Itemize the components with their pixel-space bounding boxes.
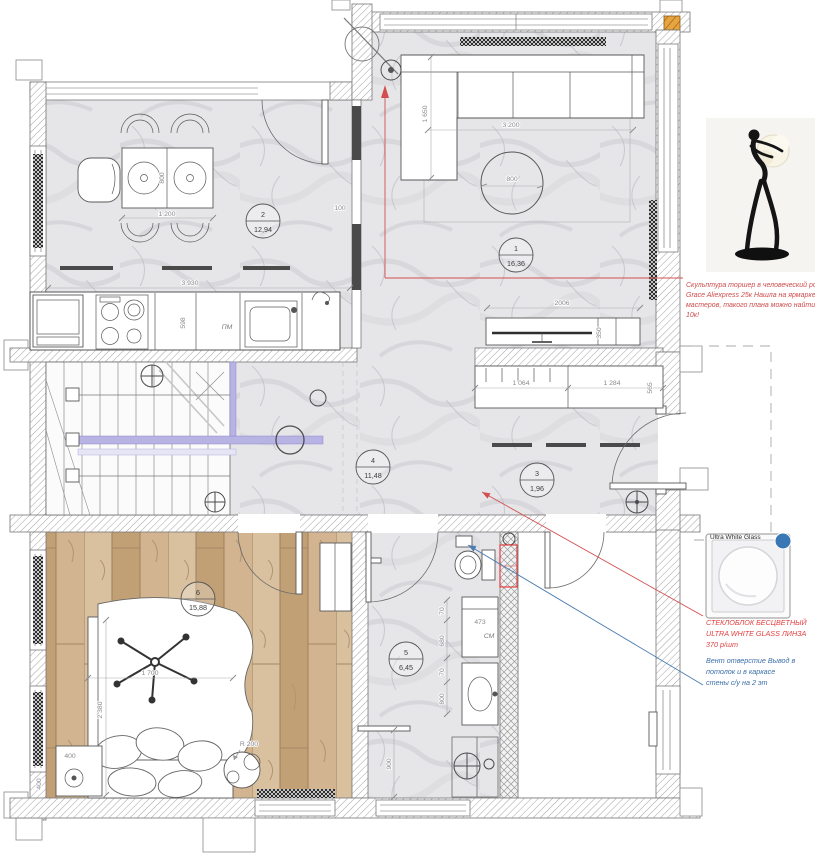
floor-storage [518,532,658,798]
wall-mid-1-right [475,348,663,366]
sculpture-note-line4: 10к! [686,312,699,319]
sculpture-note: Скульптура торшер в человеческий рост Gr… [686,281,815,319]
vent-note-line2: потолок и в каркасе [706,667,775,676]
svg-text:1,96: 1,96 [530,484,544,493]
tv-console [486,318,640,345]
glass-note-line3: 370 р/шт [706,640,738,649]
dim-wardrobe-depth: 565 [647,382,654,394]
washing-machine [462,597,498,657]
dim-wardrobe-2: 1 284 [603,380,620,387]
dim-tv-depth: 350 [596,327,603,339]
svg-text:2: 2 [261,210,265,219]
door-leaf-bathroom [366,532,371,602]
figurine-base [735,248,789,261]
wall-bath-storage [500,532,518,798]
svg-text:12,94: 12,94 [254,225,272,234]
svg-text:6: 6 [196,588,200,597]
porch-step [203,818,255,852]
sculpture-note-line2: Grace Aliexpress 25к Нашла на ярмарке [686,292,815,299]
dim-800b: 800 [439,693,446,705]
wall-bottom [10,798,700,818]
room-stamp-5: 5 6,45 [389,642,423,676]
dim-sofa-depth: 1 650 [422,105,429,122]
radiator-bedroom-1 [33,556,43,644]
dim-table-width: 1 200 [158,211,175,218]
bedroom-cabinet [320,543,351,611]
porch-outline [692,346,771,540]
room-stamp-1: 1 16,36 [499,238,533,272]
dim-sofa-length: 3 200 [502,122,519,129]
svg-text:6,45: 6,45 [399,663,413,672]
handrail [78,436,323,444]
radiator-living [649,200,657,300]
armchair [78,158,120,202]
dim-dining-width: 3 930 [181,280,198,287]
svg-text:4: 4 [371,456,375,465]
svg-text:5: 5 [404,648,408,657]
window-storage [656,686,680,774]
vent-note-line1: Вент отверстие Вывод в [706,656,796,665]
dim-washer: 473 [474,619,486,626]
sculpture-note-line3: мастеров, такого плана можно найти до [686,301,815,309]
room-stamp-2: 2 12,94 [246,204,280,238]
room-stamp-4: 4 11,48 [356,450,390,484]
wall-dining-living [352,4,372,100]
svg-text:11,48: 11,48 [364,471,381,480]
floor-passage [357,348,475,364]
dim-900: 900 [386,758,393,770]
glass-note-line2: ULTRA WHITE GLASS ЛИНЗА [706,629,807,638]
floor-plan-canvas: 1 200 800 3 930 100 598 ПМ 800 3 200 1 6… [0,0,815,858]
glass-note-line1: СТЕКЛОБЛОК БЕСЦВЕТНЫЙ [706,618,808,627]
dim-70a: 70 [439,607,446,615]
vent-note-line3: стены с/у на 2 эт [706,678,767,687]
glass-swatch: Ultra White Glass [706,533,791,618]
window-dining-top [30,82,352,100]
glass-note: СТЕКЛОБЛОК БЕСЦВЕТНЫЙ ULTRA WHITE GLASS … [706,618,808,649]
kitchen: 598 ПМ [30,292,340,350]
dim-bed-length: 2 380 [97,701,104,718]
glass-swatch-label: Ultra White Glass [710,534,761,541]
dim-70b: 70 [439,668,446,676]
brand-badge-icon [775,533,791,549]
door-leaf-entry [610,483,686,489]
shower-halfwall [358,726,410,731]
newel-post [66,388,79,401]
label-dishwasher: ПМ [222,324,233,331]
radiator-bedroom-bottom [257,789,335,798]
radiator-living-top [460,37,606,46]
dim-wardrobe-1: 1 064 [512,380,529,387]
toilet [455,551,481,579]
svg-text:3: 3 [535,469,539,478]
svg-text:15,88: 15,88 [189,603,207,612]
dim-tv-width: 2006 [554,300,569,307]
vent-note: Вент отверстие Вывод в потолок и в карка… [706,656,796,687]
room-stamp-3: 3 1,96 [520,463,554,497]
window-handle [649,712,657,746]
fridge [33,295,83,347]
dim-partition: 100 [334,205,346,212]
sculpture-photo [706,118,815,272]
dim-pouf-radius: R 200 [240,741,258,748]
dim-counter-depth: 598 [180,317,187,329]
floor-plan-drawing: 1 200 800 3 930 100 598 ПМ 800 3 200 1 6… [0,0,815,858]
dim-bed-width: 1 700 [141,670,158,677]
hall: 1 064 1 284 565 [472,366,666,408]
log-end-cut [664,16,680,30]
svg-text:1: 1 [514,244,518,253]
door-leaf-dining [322,100,328,164]
pouf [224,752,260,788]
svg-text:16,36: 16,36 [507,259,525,268]
room-stamp-6: 6 15,88 [181,582,215,616]
radiator-dining [33,154,43,248]
wall-right-entry-bottom [656,490,680,532]
door-leaf-storage [545,532,550,588]
dim-side: 400 [36,778,43,790]
dim-coffee-table: 800 [506,176,518,183]
label-washer: СМ [484,633,495,640]
nightstand [56,746,102,796]
dim-680: 680 [439,635,446,647]
radiator-bedroom-2 [33,692,43,766]
dining-table [122,148,213,208]
dim-nightstand: 400 [64,753,76,760]
dim-table-depth: 800 [159,172,166,184]
door-leaf-bedroom [296,532,302,594]
sculpture-note-line1: Скульптура торшер в человеческий рост [686,281,815,289]
